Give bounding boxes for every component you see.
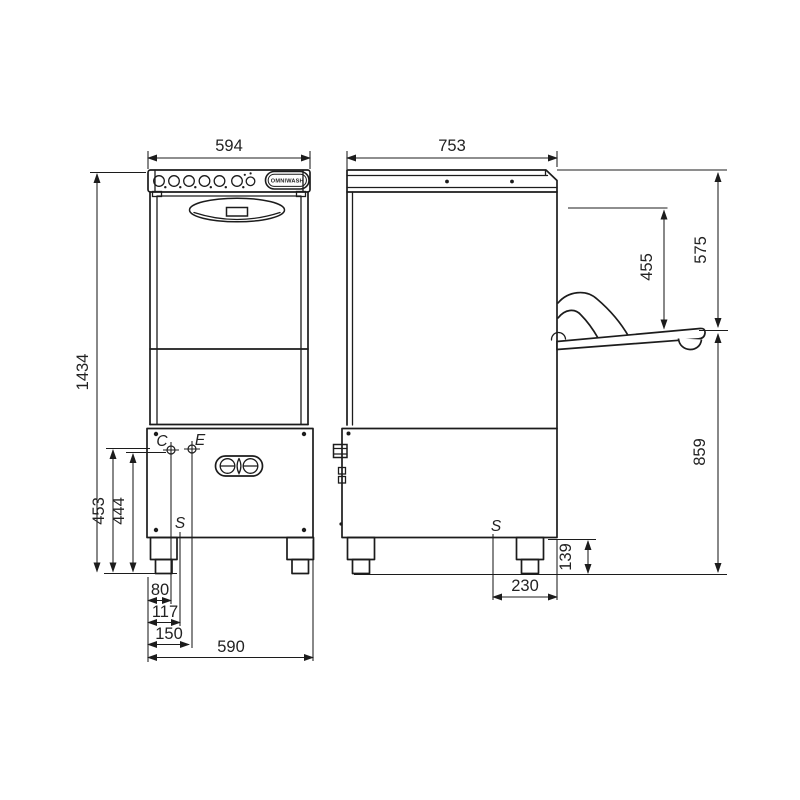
dim-453-label: 453 [90, 497, 108, 525]
brand-logo: OMNIWASH [266, 172, 310, 190]
front-view: OMNIWASH [147, 170, 314, 574]
side-top-band [347, 170, 557, 192]
door-handle [190, 198, 285, 222]
ground-lines [104, 574, 727, 575]
side-point-s-label: S [491, 518, 502, 535]
dim-80: 80 [148, 581, 171, 601]
door-grip-icon [679, 339, 702, 350]
dim-230: 230 [493, 577, 557, 597]
side-view [334, 170, 706, 574]
dim-150-label: 150 [155, 625, 183, 643]
dim-455-label: 455 [638, 253, 656, 281]
side-dimensions: 753 455 575 859 S 230 [347, 137, 728, 600]
dim-575-label: 575 [692, 236, 710, 264]
point-c-label: C [156, 433, 168, 450]
dim-80-label: 80 [151, 581, 169, 599]
front-legs [151, 538, 314, 574]
dim-1434-label: 1434 [74, 354, 92, 391]
dim-594-label: 594 [215, 137, 243, 155]
front-base [147, 429, 313, 538]
knob-icons [154, 172, 255, 188]
dim-455: 455 [568, 208, 668, 329]
door-handle-profile-inner [558, 310, 598, 338]
dim-859: 859 [691, 334, 718, 572]
side-fitting-gland [334, 445, 348, 484]
dim-139: 139 [548, 540, 596, 574]
front-body [150, 192, 308, 425]
dim-594: 594 [148, 137, 310, 169]
dim-150: 150 [148, 625, 189, 645]
dim-117: 117 [148, 603, 180, 623]
point-e-label: E [195, 432, 206, 449]
dim-753: 753 [347, 137, 557, 169]
control-panel: OMNIWASH [148, 170, 310, 197]
open-door [551, 293, 705, 350]
dishwasher-dimension-drawing: OMNIWASH [0, 0, 800, 800]
dim-444-label: 444 [110, 497, 128, 525]
side-body [347, 192, 557, 429]
dim-230-label: 230 [511, 577, 539, 595]
brand-logo-text: OMNIWASH [271, 179, 304, 185]
dim-590-label: 590 [217, 638, 245, 656]
dim-575: 575 [692, 173, 718, 327]
side-legs [348, 538, 544, 574]
pump-symbol-icon [216, 456, 263, 476]
side-base [334, 429, 558, 538]
technical-drawing-page: OMNIWASH [0, 0, 800, 800]
point-s-label: S [175, 515, 186, 532]
dim-753-label: 753 [438, 137, 466, 155]
dim-139-label: 139 [557, 543, 575, 571]
dim-444: 444 [110, 453, 166, 572]
dim-859-label: 859 [691, 438, 709, 466]
dim-117-label: 117 [152, 603, 178, 621]
